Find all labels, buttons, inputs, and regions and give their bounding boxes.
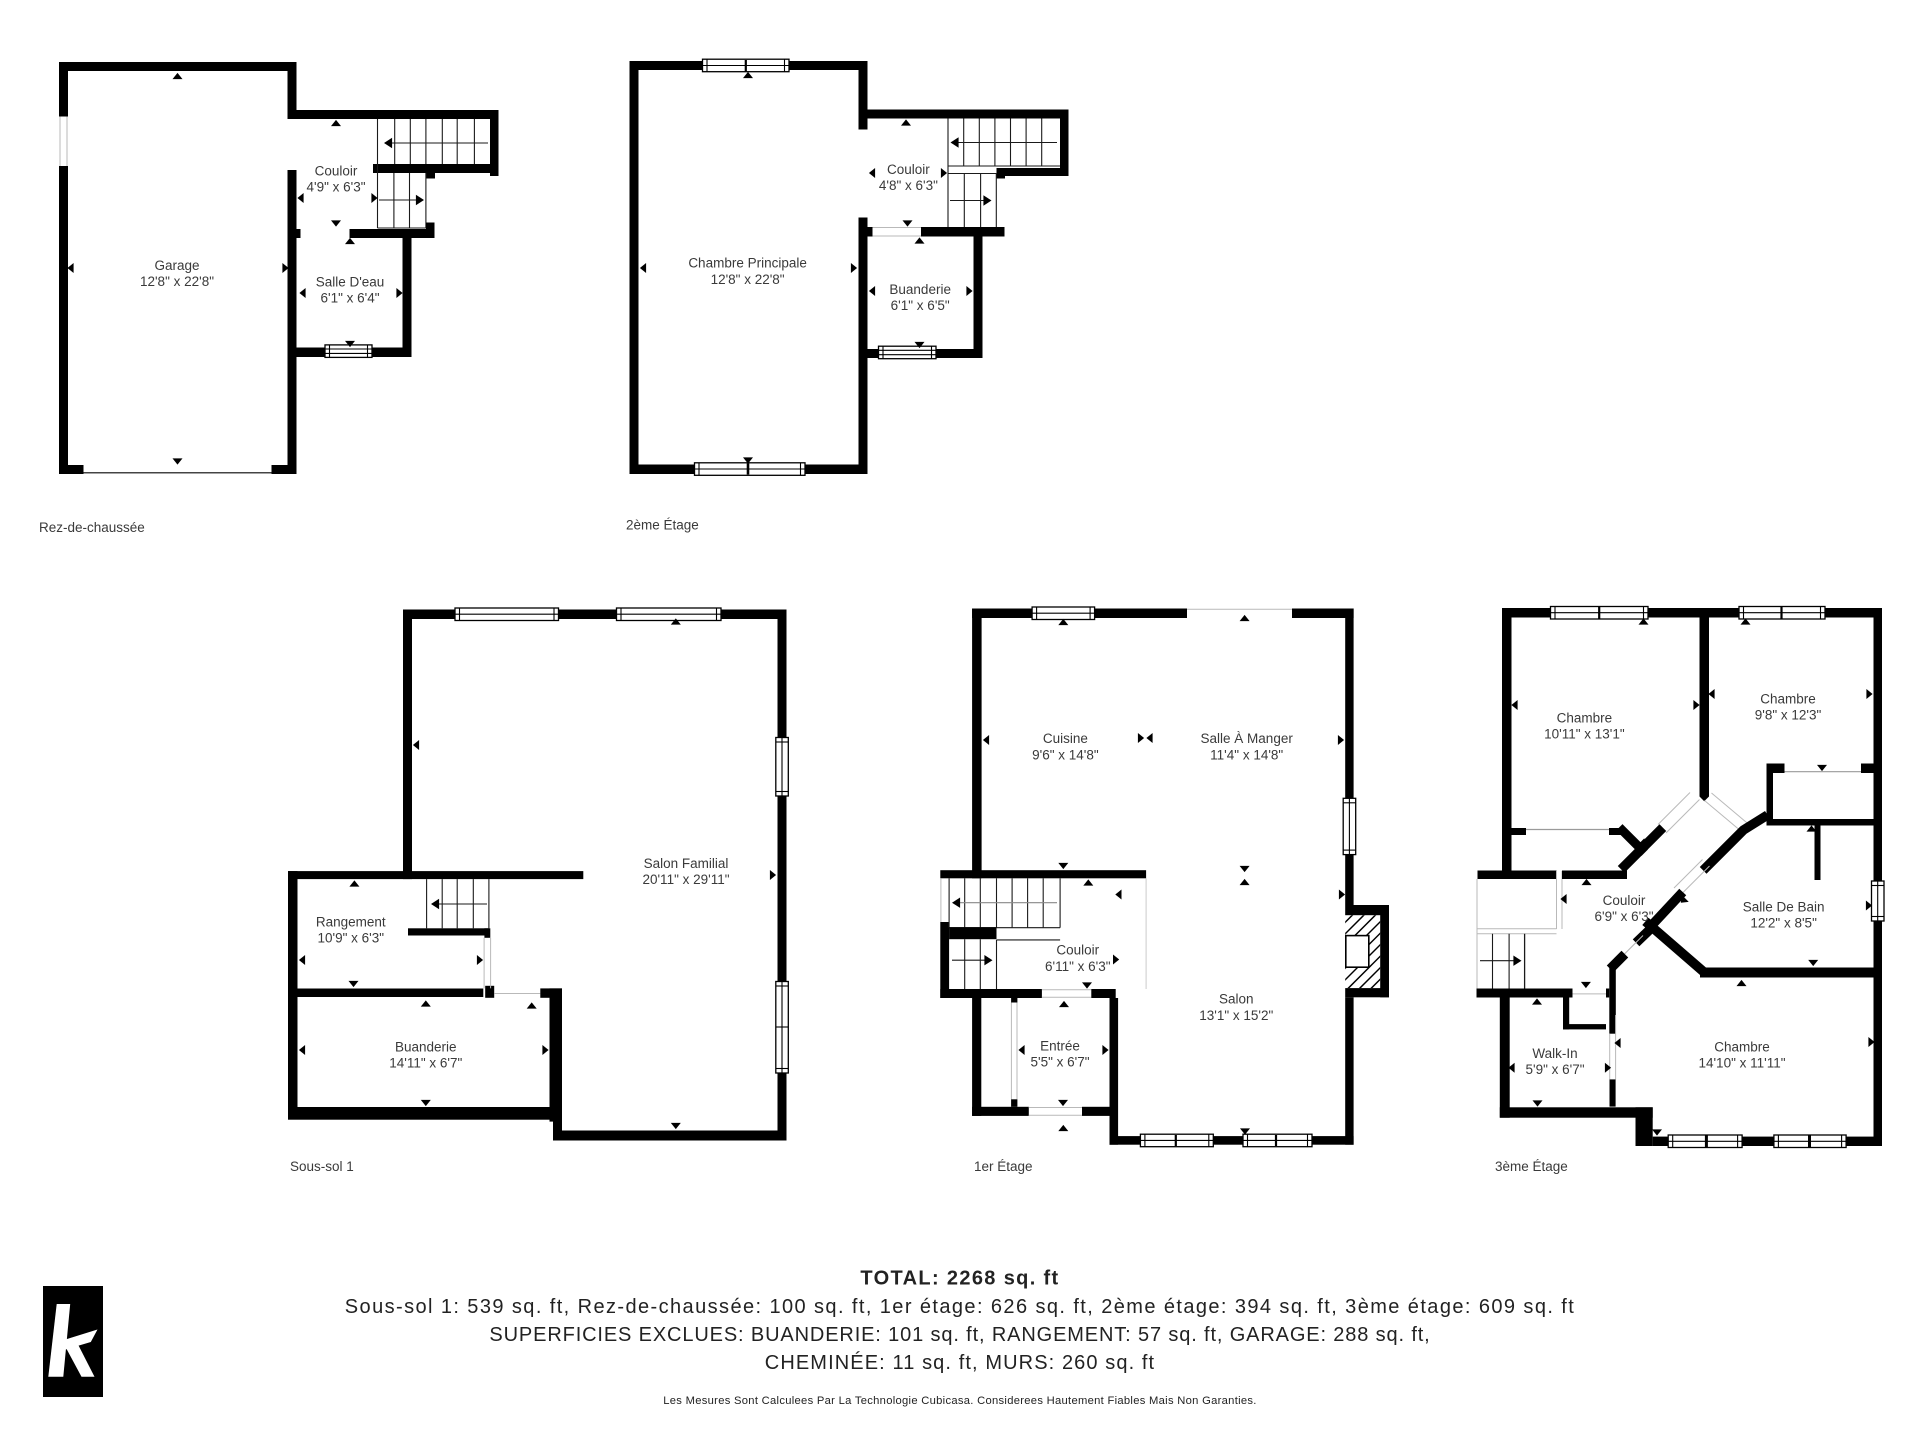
- svg-text:14'10" x 11'11": 14'10" x 11'11": [1698, 1056, 1785, 1071]
- svg-text:Couloir: Couloir: [1056, 943, 1099, 958]
- svg-text:6'11" x 6'3": 6'11" x 6'3": [1045, 959, 1111, 974]
- svg-text:5'9" x 6'7": 5'9" x 6'7": [1525, 1062, 1584, 1077]
- svg-text:Salon Familial: Salon Familial: [644, 856, 729, 871]
- svg-text:Salle À Manger: Salle À Manger: [1201, 731, 1294, 746]
- svg-text:10'9" x 6'3": 10'9" x 6'3": [318, 931, 385, 946]
- svg-text:Sous-sol 1: Sous-sol 1: [290, 1159, 354, 1174]
- svg-text:Chambre Principale: Chambre Principale: [688, 256, 807, 271]
- svg-text:13'1" x 15'2": 13'1" x 15'2": [1199, 1008, 1273, 1023]
- svg-text:Salle De Bain: Salle De Bain: [1743, 899, 1825, 914]
- svg-text:Couloir: Couloir: [315, 163, 358, 178]
- svg-text:Couloir: Couloir: [1603, 893, 1646, 908]
- svg-text:TOTAL: 2268 sq. ft: TOTAL: 2268 sq. ft: [860, 1268, 1059, 1290]
- svg-text:Les Mesures Sont Calculees Par: Les Mesures Sont Calculees Par La Techno…: [663, 1395, 1256, 1407]
- svg-text:10'11" x 13'1": 10'11" x 13'1": [1544, 727, 1625, 742]
- svg-text:Couloir: Couloir: [887, 162, 930, 177]
- svg-text:Buanderie: Buanderie: [889, 282, 951, 297]
- svg-text:14'11" x 6'7": 14'11" x 6'7": [389, 1056, 462, 1071]
- svg-text:4'9" x 6'3": 4'9" x 6'3": [306, 180, 365, 195]
- svg-text:2ème Étage: 2ème Étage: [626, 518, 699, 533]
- svg-text:6'1" x 6'5": 6'1" x 6'5": [891, 298, 950, 313]
- svg-text:12'8" x 22'8": 12'8" x 22'8": [711, 272, 785, 287]
- svg-text:Sous-sol 1: 539 sq. ft, Rez-de: Sous-sol 1: 539 sq. ft, Rez-de-chaussée:…: [345, 1296, 1575, 1318]
- svg-text:5'5" x 6'7": 5'5" x 6'7": [1030, 1055, 1089, 1070]
- svg-text:Chambre: Chambre: [1557, 710, 1613, 725]
- svg-text:Walk-In: Walk-In: [1532, 1046, 1577, 1061]
- svg-text:Buanderie: Buanderie: [395, 1039, 457, 1054]
- svg-text:9'6" x 14'8": 9'6" x 14'8": [1032, 748, 1099, 763]
- svg-text:9'8" x 12'3": 9'8" x 12'3": [1755, 708, 1822, 723]
- svg-text:Rangement: Rangement: [316, 914, 386, 929]
- svg-text:Entrée: Entrée: [1040, 1038, 1080, 1053]
- svg-text:CHEMINÉE: 11 sq. ft, MURS: 260: CHEMINÉE: 11 sq. ft, MURS: 260 sq. ft: [765, 1351, 1155, 1374]
- svg-text:Chambre: Chambre: [1714, 1039, 1770, 1054]
- svg-text:4'8" x 6'3": 4'8" x 6'3": [879, 178, 938, 193]
- svg-text:SUPERFICIES EXCLUES: BUANDERIE: SUPERFICIES EXCLUES: BUANDERIE: 101 sq. …: [489, 1324, 1430, 1346]
- svg-text:12'2" x 8'5": 12'2" x 8'5": [1750, 916, 1817, 931]
- svg-text:Garage: Garage: [154, 258, 199, 273]
- svg-text:Salon: Salon: [1219, 992, 1254, 1007]
- svg-text:11'4" x 14'8": 11'4" x 14'8": [1210, 748, 1283, 763]
- svg-text:12'8" x 22'8": 12'8" x 22'8": [140, 274, 214, 289]
- svg-text:Chambre: Chambre: [1760, 691, 1816, 706]
- svg-text:20'11" x 29'11": 20'11" x 29'11": [642, 872, 729, 887]
- svg-text:3ème Étage: 3ème Étage: [1495, 1159, 1568, 1174]
- svg-text:6'9" x 6'3": 6'9" x 6'3": [1594, 909, 1653, 924]
- svg-text:Salle D'eau: Salle D'eau: [316, 274, 385, 289]
- svg-text:Rez-de-chaussée: Rez-de-chaussée: [39, 520, 145, 535]
- svg-text:6'1" x 6'4": 6'1" x 6'4": [320, 291, 379, 306]
- svg-text:1er Étage: 1er Étage: [974, 1159, 1033, 1174]
- svg-text:Cuisine: Cuisine: [1043, 731, 1088, 746]
